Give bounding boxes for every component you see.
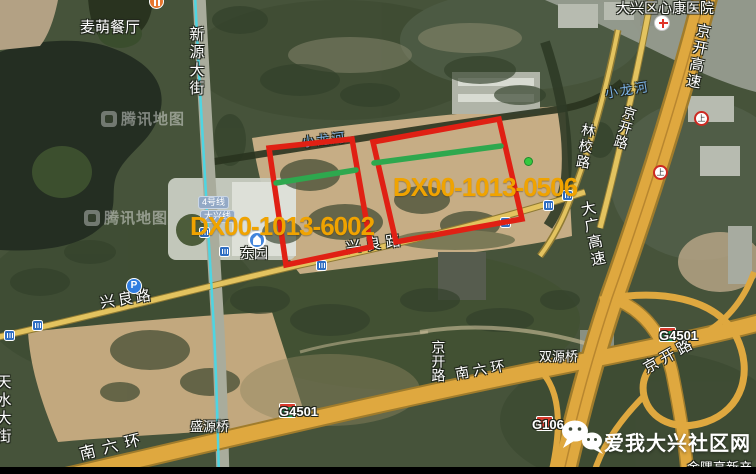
jingkai-road-label-top: 京开路 bbox=[611, 104, 638, 151]
route-number: G4501 bbox=[279, 404, 318, 419]
parcel-id-label-east: DX00-1013-0506 bbox=[393, 172, 577, 203]
tianshui-street-label: 天水大街 bbox=[0, 374, 11, 446]
xiaolong-river-label: 小龙河 bbox=[604, 80, 651, 101]
green-marker-dot bbox=[524, 157, 533, 166]
shuangyuan-bridge-label: 双源桥 bbox=[539, 350, 578, 364]
hospital-icon[interactable] bbox=[654, 15, 670, 31]
subway-entrance-icon[interactable] bbox=[500, 217, 511, 228]
jingkai-road-label-mid: 京开路 bbox=[430, 340, 445, 382]
restaurant-icon[interactable] bbox=[149, 0, 164, 9]
wechat-icon bbox=[560, 418, 606, 456]
subway-entrance-icon[interactable] bbox=[316, 260, 327, 271]
poi-ring-icon[interactable]: 上 bbox=[694, 111, 709, 126]
poi-ring-icon[interactable]: 上 bbox=[653, 165, 668, 180]
hospital-label[interactable]: 大兴区心康医院 bbox=[616, 1, 714, 16]
community-site-watermark: 爱我大兴社区网 bbox=[604, 427, 751, 456]
parking-icon[interactable]: P bbox=[126, 278, 142, 294]
parcel-id-label-west: DX00-1013-6002 bbox=[190, 211, 374, 242]
south-6th-ring-label-west: 南六环 bbox=[78, 430, 149, 464]
daguang-expressway-label: 大广高速 bbox=[577, 199, 606, 269]
jingkai-expressway-label: 京开高速 bbox=[682, 21, 711, 91]
subway-entrance-icon[interactable] bbox=[219, 246, 230, 257]
route-number: G4501 bbox=[659, 328, 698, 343]
xingliang-road-label-west: 兴良路 bbox=[99, 288, 155, 313]
g4501-badge: G4501 bbox=[659, 327, 698, 343]
shengyuan-bridge-label: 盛源桥 bbox=[190, 420, 229, 434]
satellite-map[interactable]: 腾讯地图 腾讯地图 P 上 上 4号线 大兴线 G4501 G4501 bbox=[0, 0, 756, 474]
g4501-badge: G4501 bbox=[279, 403, 318, 419]
letterbox-bar bbox=[0, 467, 756, 474]
line-4-badge[interactable]: 4号线 bbox=[198, 196, 229, 209]
linxiao-road-label: 林校路 bbox=[574, 122, 597, 172]
xiaolong-river-label: 小龙河 bbox=[301, 131, 347, 151]
subway-entrance-icon[interactable] bbox=[4, 330, 15, 341]
map-annotations: P 上 上 4号线 大兴线 G4501 G4501 G106 麦萌餐厅 大兴区心… bbox=[0, 0, 756, 474]
xinyuan-street-label: 新源大街 bbox=[187, 26, 204, 98]
restaurant-label[interactable]: 麦萌餐厅 bbox=[80, 20, 140, 37]
south-6th-ring-label-east: 南六环 bbox=[454, 358, 510, 383]
subway-entrance-icon[interactable] bbox=[32, 320, 43, 331]
